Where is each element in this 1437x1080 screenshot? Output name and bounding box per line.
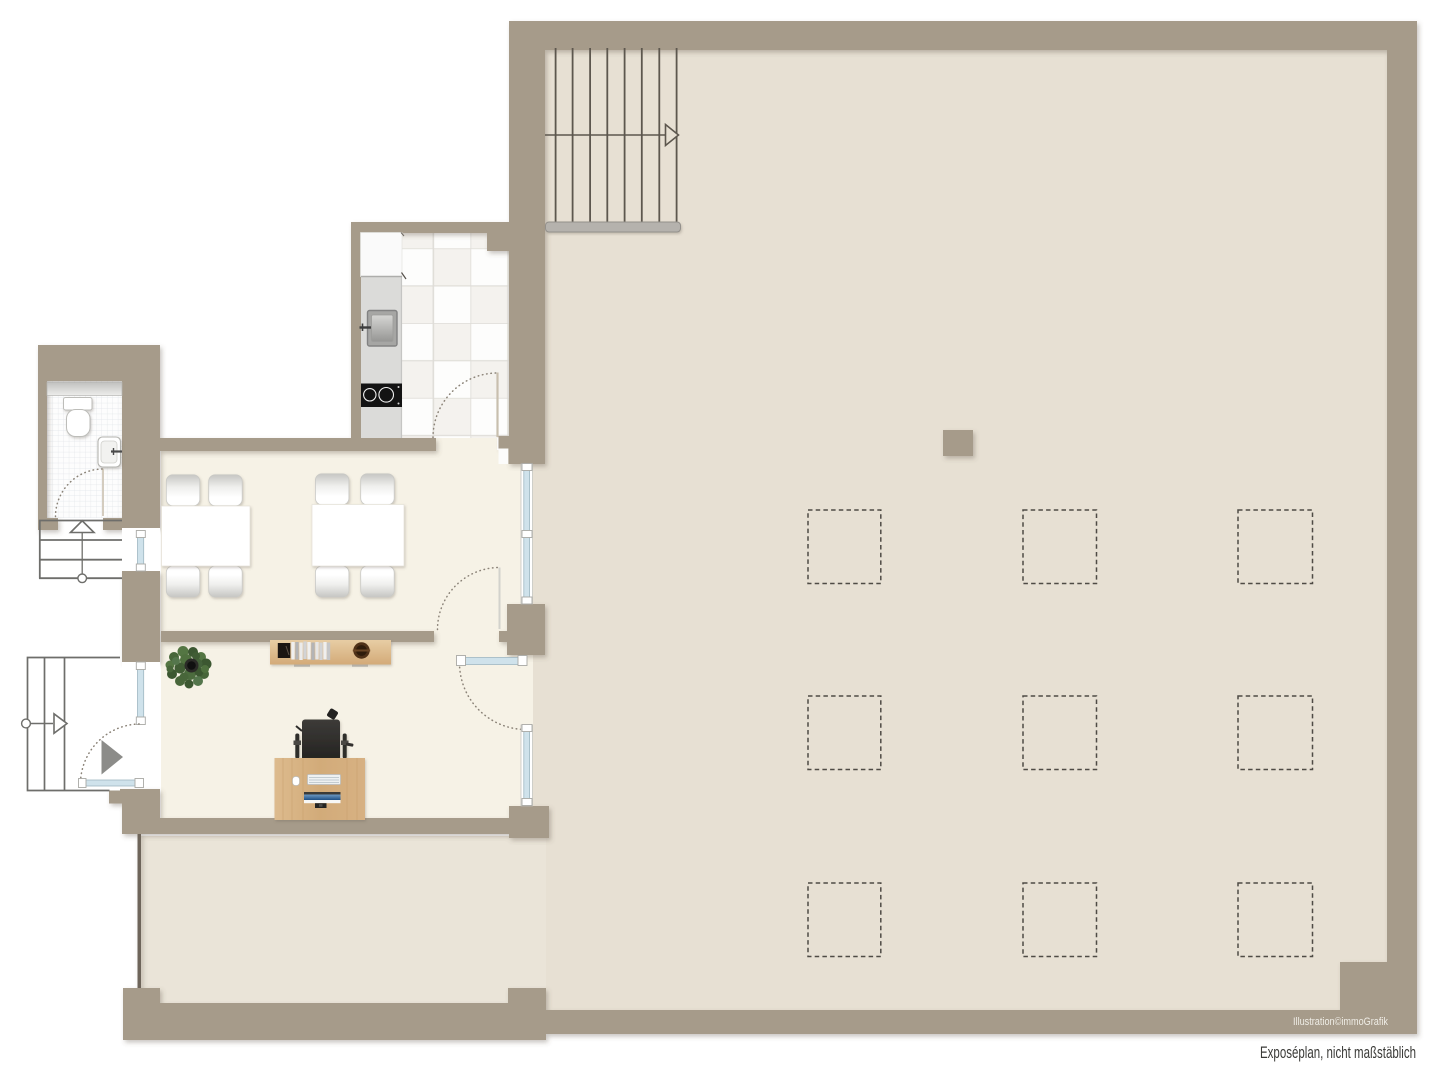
svg-text:Exposéplan, nicht maßstäblich: Exposéplan, nicht maßstäblich xyxy=(1260,1044,1416,1062)
svg-text:Illustration©immoGrafik: Illustration©immoGrafik xyxy=(1293,1016,1388,1028)
